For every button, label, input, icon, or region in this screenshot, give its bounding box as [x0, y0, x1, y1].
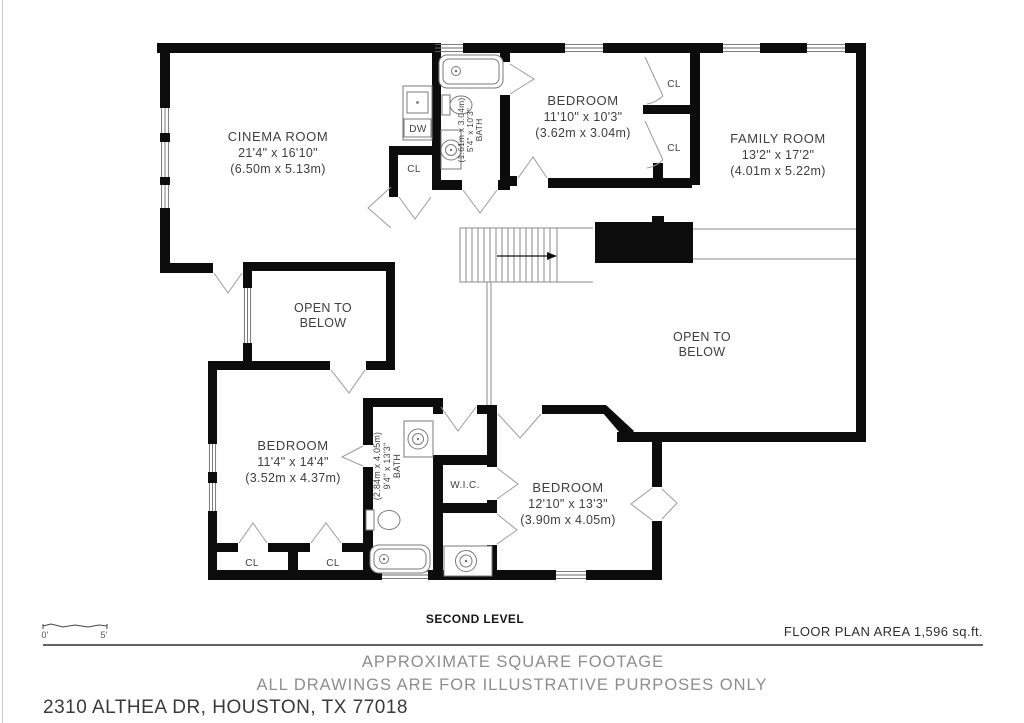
sink — [404, 421, 433, 457]
bath-top-dims: 5'4" x 10'3" — [465, 108, 475, 152]
fireplace — [595, 216, 693, 263]
footer-note-1: APPROXIMATE SQUARE FOOTAGE — [362, 653, 664, 671]
cinema-room-dims: 21'4" x 16'10" — [238, 146, 318, 160]
bedroom-bottom-dims: 12'10" x 13'3" — [528, 497, 608, 511]
door-family-closet-upper-arc — [647, 96, 663, 104]
bathtub — [439, 55, 503, 88]
bathtub — [370, 545, 430, 573]
open-below-left-line2: BELOW — [300, 316, 347, 330]
closet-label-cinema: CL — [407, 164, 421, 175]
door-bedroom-bottom-east-in — [631, 488, 652, 520]
bedroom-top-label: BEDROOM — [547, 93, 618, 108]
door-family-closet-upper — [645, 57, 663, 96]
closet-label-bottom-right: CL — [326, 558, 340, 569]
door-cinema-main — [368, 187, 391, 228]
door-bedroom-bottom-east-out — [662, 489, 677, 519]
door-wic — [497, 468, 518, 499]
bedroom-bottom-metric: (3.90m x 4.05m) — [520, 513, 616, 527]
window — [556, 572, 586, 579]
bath-top-metric: (1.61m x 3.04m) — [456, 98, 466, 163]
door-bedroom-left — [331, 370, 365, 393]
door-family-closet-lower — [645, 121, 663, 160]
closet-label-bottom-left: CL — [245, 558, 259, 569]
door-closet-left — [239, 523, 267, 543]
window — [162, 108, 169, 133]
door-sink-room — [497, 514, 517, 544]
walls — [157, 43, 866, 580]
closet-label-family-upper: CL — [667, 79, 681, 90]
door-bedroom-bottom-north — [498, 414, 541, 438]
closet-label-family-lower: CL — [667, 143, 681, 154]
door-cinema-closet — [399, 197, 431, 219]
door-closet-right — [311, 523, 341, 543]
bedroom-left-label: BEDROOM — [257, 438, 328, 453]
door-bedroom-left-bath — [342, 446, 363, 466]
bedroom-left-dims: 11'4" x 14'4" — [257, 455, 329, 469]
footer-note-2: ALL DRAWINGS ARE FOR ILLUSTRATIVE PURPOS… — [257, 676, 768, 694]
window — [565, 45, 603, 52]
property-address: 2310 ALTHEA DR, HOUSTON, TX 77018 — [43, 697, 408, 718]
level-title: SECOND LEVEL — [426, 612, 524, 626]
bedroom-top-metric: (3.62m x 3.04m) — [535, 126, 631, 140]
open-below-right-line1: OPEN TO — [673, 330, 731, 344]
bedroom-left-metric: (3.52m x 4.37m) — [245, 471, 341, 485]
bath-bottom-dims: 9'4" x 13'3" — [382, 443, 392, 490]
window — [209, 444, 215, 472]
family-room-dims: 13'2" x 17'2" — [742, 148, 814, 162]
bath-bottom-metric: (2.84m x 4.05m) — [372, 432, 382, 501]
room-labels: CINEMA ROOM 21'4" x 16'10" (6.50m x 5.13… — [228, 79, 826, 569]
floor-plan-page: CINEMA ROOM 21'4" x 16'10" (6.50m x 5.13… — [0, 0, 1024, 723]
window — [244, 288, 250, 343]
family-room-metric: (4.01m x 5.22m) — [730, 164, 826, 178]
window — [723, 45, 760, 52]
bedroom-bottom-label: BEDROOM — [532, 480, 603, 495]
window — [162, 142, 169, 177]
door-bath-top-hall — [463, 190, 497, 213]
dw-label: DW — [409, 124, 427, 135]
door-cinema-vestibule — [214, 273, 242, 293]
window — [162, 185, 169, 208]
bath-bottom-label: BATH — [392, 454, 402, 478]
footer: 0' 5' SECOND LEVEL FLOOR PLAN AREA 1,596… — [41, 612, 983, 718]
open-below-left-line1: OPEN TO — [294, 301, 352, 315]
scale-five-label: 5' — [100, 630, 107, 640]
sink — [444, 546, 492, 576]
family-room-label: FAMILY ROOM — [730, 131, 826, 146]
bath-top-label: BATH — [474, 119, 484, 142]
scale-zero-label: 0' — [41, 630, 48, 640]
window — [807, 45, 845, 52]
cinema-room-label: CINEMA ROOM — [228, 129, 329, 144]
stairs-direction-arrow — [547, 252, 557, 260]
door-bath-top-bedroom — [510, 64, 534, 94]
open-below-right-line2: BELOW — [679, 345, 726, 359]
wic-label: W.I.C. — [450, 480, 480, 491]
window — [209, 483, 215, 511]
stairs — [460, 228, 593, 282]
bedroom-top-dims: 11'10" x 10'3" — [544, 110, 623, 124]
cinema-room-metric: (6.50m x 5.13m) — [230, 162, 326, 176]
door-bedroom-top — [518, 157, 547, 178]
toilet — [366, 510, 400, 530]
scale-bar: 0' 5' — [41, 624, 107, 640]
door-bath-suite-entry — [441, 407, 476, 431]
floor-plan-area: FLOOR PLAN AREA 1,596 sq.ft. — [784, 624, 983, 639]
floor-plan-drawing: CINEMA ROOM 21'4" x 16'10" (6.50m x 5.13… — [0, 0, 1024, 723]
